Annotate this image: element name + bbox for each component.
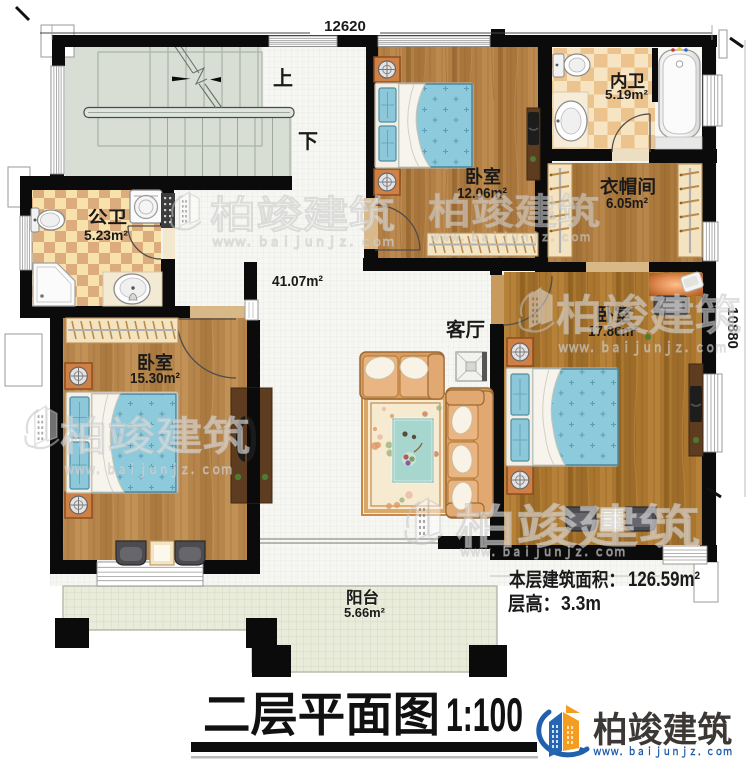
svg-text:下: 下 [298, 131, 318, 153]
svg-text:公卫: 公卫 [88, 208, 127, 227]
svg-text:层高：: 层高： [508, 592, 560, 615]
svg-text:柏竣建筑: 柏竣建筑 [60, 415, 250, 459]
svg-text:5.23m²: 5.23m² [84, 227, 128, 243]
svg-text:5.66m²: 5.66m² [344, 605, 386, 620]
svg-text:柏竣建筑: 柏竣建筑 [428, 191, 600, 232]
svg-text:ｗｗｗ．ｂａｉｊｕｎｊｚ．ｃｏｍ: ｗｗｗ．ｂａｉｊｕｎｊｚ．ｃｏｍ [460, 544, 625, 560]
svg-text:5.19m²: 5.19m² [605, 87, 649, 102]
svg-text:1:100: 1:100 [446, 688, 523, 741]
svg-text:41.07m²: 41.07m² [272, 273, 323, 290]
svg-text:客厅: 客厅 [446, 318, 485, 341]
svg-text:126.59m²: 126.59m² [628, 568, 700, 591]
svg-text:3.3m: 3.3m [561, 593, 601, 615]
svg-text:12620: 12620 [324, 18, 366, 35]
svg-text:ｗｗｗ．ｂａｉｊｕｎｊｚ．ｃｏｍ: ｗｗｗ．ｂａｉｊｕｎｊｚ．ｃｏｍ [212, 234, 394, 250]
svg-text:柏竣建筑: 柏竣建筑 [556, 292, 741, 339]
svg-text:二层平面图: 二层平面图 [203, 688, 440, 741]
svg-text:ｗｗｗ．ｂａｉｊｕｎｊｚ．ｃｏｍ: ｗｗｗ．ｂａｉｊｕｎｊｚ．ｃｏｍ [430, 230, 590, 245]
svg-text:6.05m²: 6.05m² [606, 195, 648, 212]
svg-text:衣帽间: 衣帽间 [600, 176, 656, 197]
svg-text:上: 上 [273, 67, 293, 90]
svg-text:柏竣建筑: 柏竣建筑 [210, 195, 395, 237]
svg-text:15.30m²: 15.30m² [130, 370, 180, 387]
svg-text:ｗｗｗ．ｂａｉｊｕｎｊｚ．ｃｏｍ: ｗｗｗ．ｂａｉｊｕｎｊｚ．ｃｏｍ [64, 461, 232, 479]
svg-text:ｗｗｗ．ｂａｉｊｕｎｊｚ．ｃｏｍ: ｗｗｗ．ｂａｉｊｕｎｊｚ．ｃｏｍ [558, 339, 726, 357]
svg-text:卧室: 卧室 [465, 166, 501, 187]
svg-text:柏竣建筑: 柏竣建筑 [593, 710, 732, 750]
svg-text:本层建筑面积：: 本层建筑面积： [509, 568, 625, 591]
svg-text:ｗｗｗ．ｂａｉｊｕｎｊｚ．ｃｏｍ: ｗｗｗ．ｂａｉｊｕｎｊｚ．ｃｏｍ [593, 746, 732, 759]
